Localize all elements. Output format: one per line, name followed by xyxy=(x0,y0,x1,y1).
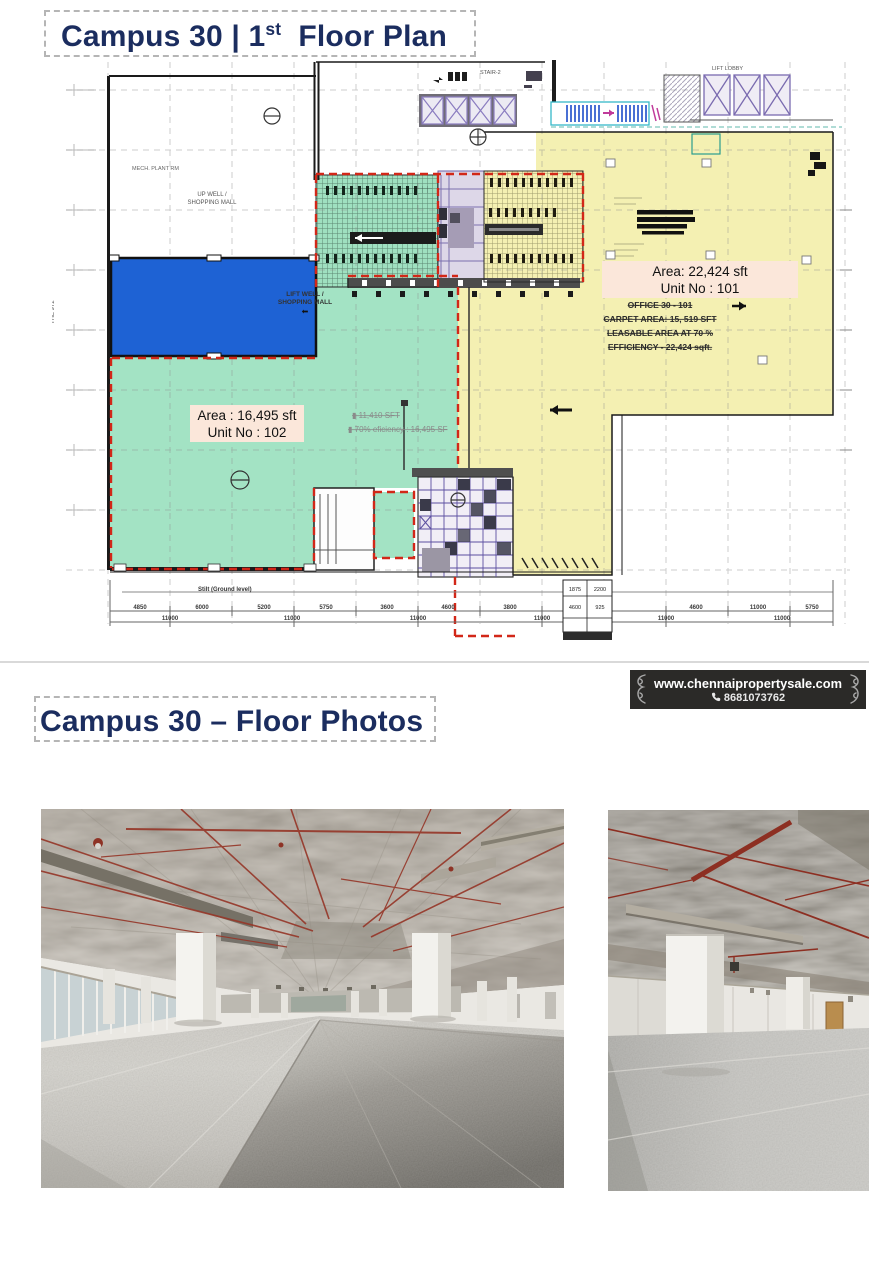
svg-text:▮ 70% eficiency : 16,495 SF: ▮ 70% eficiency : 16,495 SF xyxy=(348,425,448,434)
svg-text:5750: 5750 xyxy=(319,605,333,611)
svg-text:11000: 11000 xyxy=(750,605,767,611)
svg-text:5200: 5200 xyxy=(257,605,271,611)
svg-text:4600: 4600 xyxy=(689,605,703,611)
svg-text:5750: 5750 xyxy=(805,605,819,611)
svg-text:4850: 4850 xyxy=(133,605,147,611)
svg-text:11000: 11000 xyxy=(162,616,179,622)
svg-text:11000: 11000 xyxy=(774,616,791,622)
svg-text:LIFT LOBBY: LIFT LOBBY xyxy=(712,66,743,72)
svg-text:THE 972: THE 972 xyxy=(52,300,56,324)
svg-text:▮ 11,410 SFT: ▮ 11,410 SFT xyxy=(352,411,400,420)
svg-text:4600: 4600 xyxy=(441,605,455,611)
svg-text:Area : 16,495 sft: Area : 16,495 sft xyxy=(197,408,296,423)
svg-text:4600: 4600 xyxy=(569,605,581,611)
svg-text:Stilt (Ground level): Stilt (Ground level) xyxy=(198,587,252,593)
svg-text:LIFT WELL /: LIFT WELL / xyxy=(286,291,324,298)
svg-text:6000: 6000 xyxy=(195,605,209,611)
svg-text:CARPET AREA: 15, 519 SFT: CARPET AREA: 15, 519 SFT xyxy=(603,314,717,324)
svg-text:OFFICE 30 - 101: OFFICE 30 - 101 xyxy=(628,300,693,310)
svg-text:LEASABLE AREA AT 70 %: LEASABLE AREA AT 70 % xyxy=(607,328,714,338)
svg-text:11000: 11000 xyxy=(658,616,675,622)
svg-text:⬅: ⬅ xyxy=(302,307,309,316)
svg-text:11000: 11000 xyxy=(284,616,301,622)
svg-text:SHOPPING MALL: SHOPPING MALL xyxy=(187,200,237,206)
svg-text:Area: 22,424 sft: Area: 22,424 sft xyxy=(652,264,748,279)
svg-text:SHOPPING MALL: SHOPPING MALL xyxy=(278,299,332,306)
svg-text:3800: 3800 xyxy=(503,605,517,611)
svg-text:11000: 11000 xyxy=(534,616,551,622)
svg-text:925: 925 xyxy=(595,605,604,611)
svg-text:11000: 11000 xyxy=(410,616,427,622)
svg-text:EFFICIENCY - 22,424 sqft.: EFFICIENCY - 22,424 sqft. xyxy=(608,342,712,352)
svg-text:STAIR-2: STAIR-2 xyxy=(480,70,501,76)
svg-text:UP WELL /: UP WELL / xyxy=(197,192,227,198)
svg-text:MECH. PLANT RM: MECH. PLANT RM xyxy=(132,166,179,172)
svg-text:1875: 1875 xyxy=(569,587,581,593)
svg-text:3600: 3600 xyxy=(380,605,394,611)
svg-text:2200: 2200 xyxy=(594,587,606,593)
svg-text:Unit No : 101: Unit No : 101 xyxy=(661,281,740,296)
svg-text:Unit No : 102: Unit No : 102 xyxy=(208,425,287,440)
